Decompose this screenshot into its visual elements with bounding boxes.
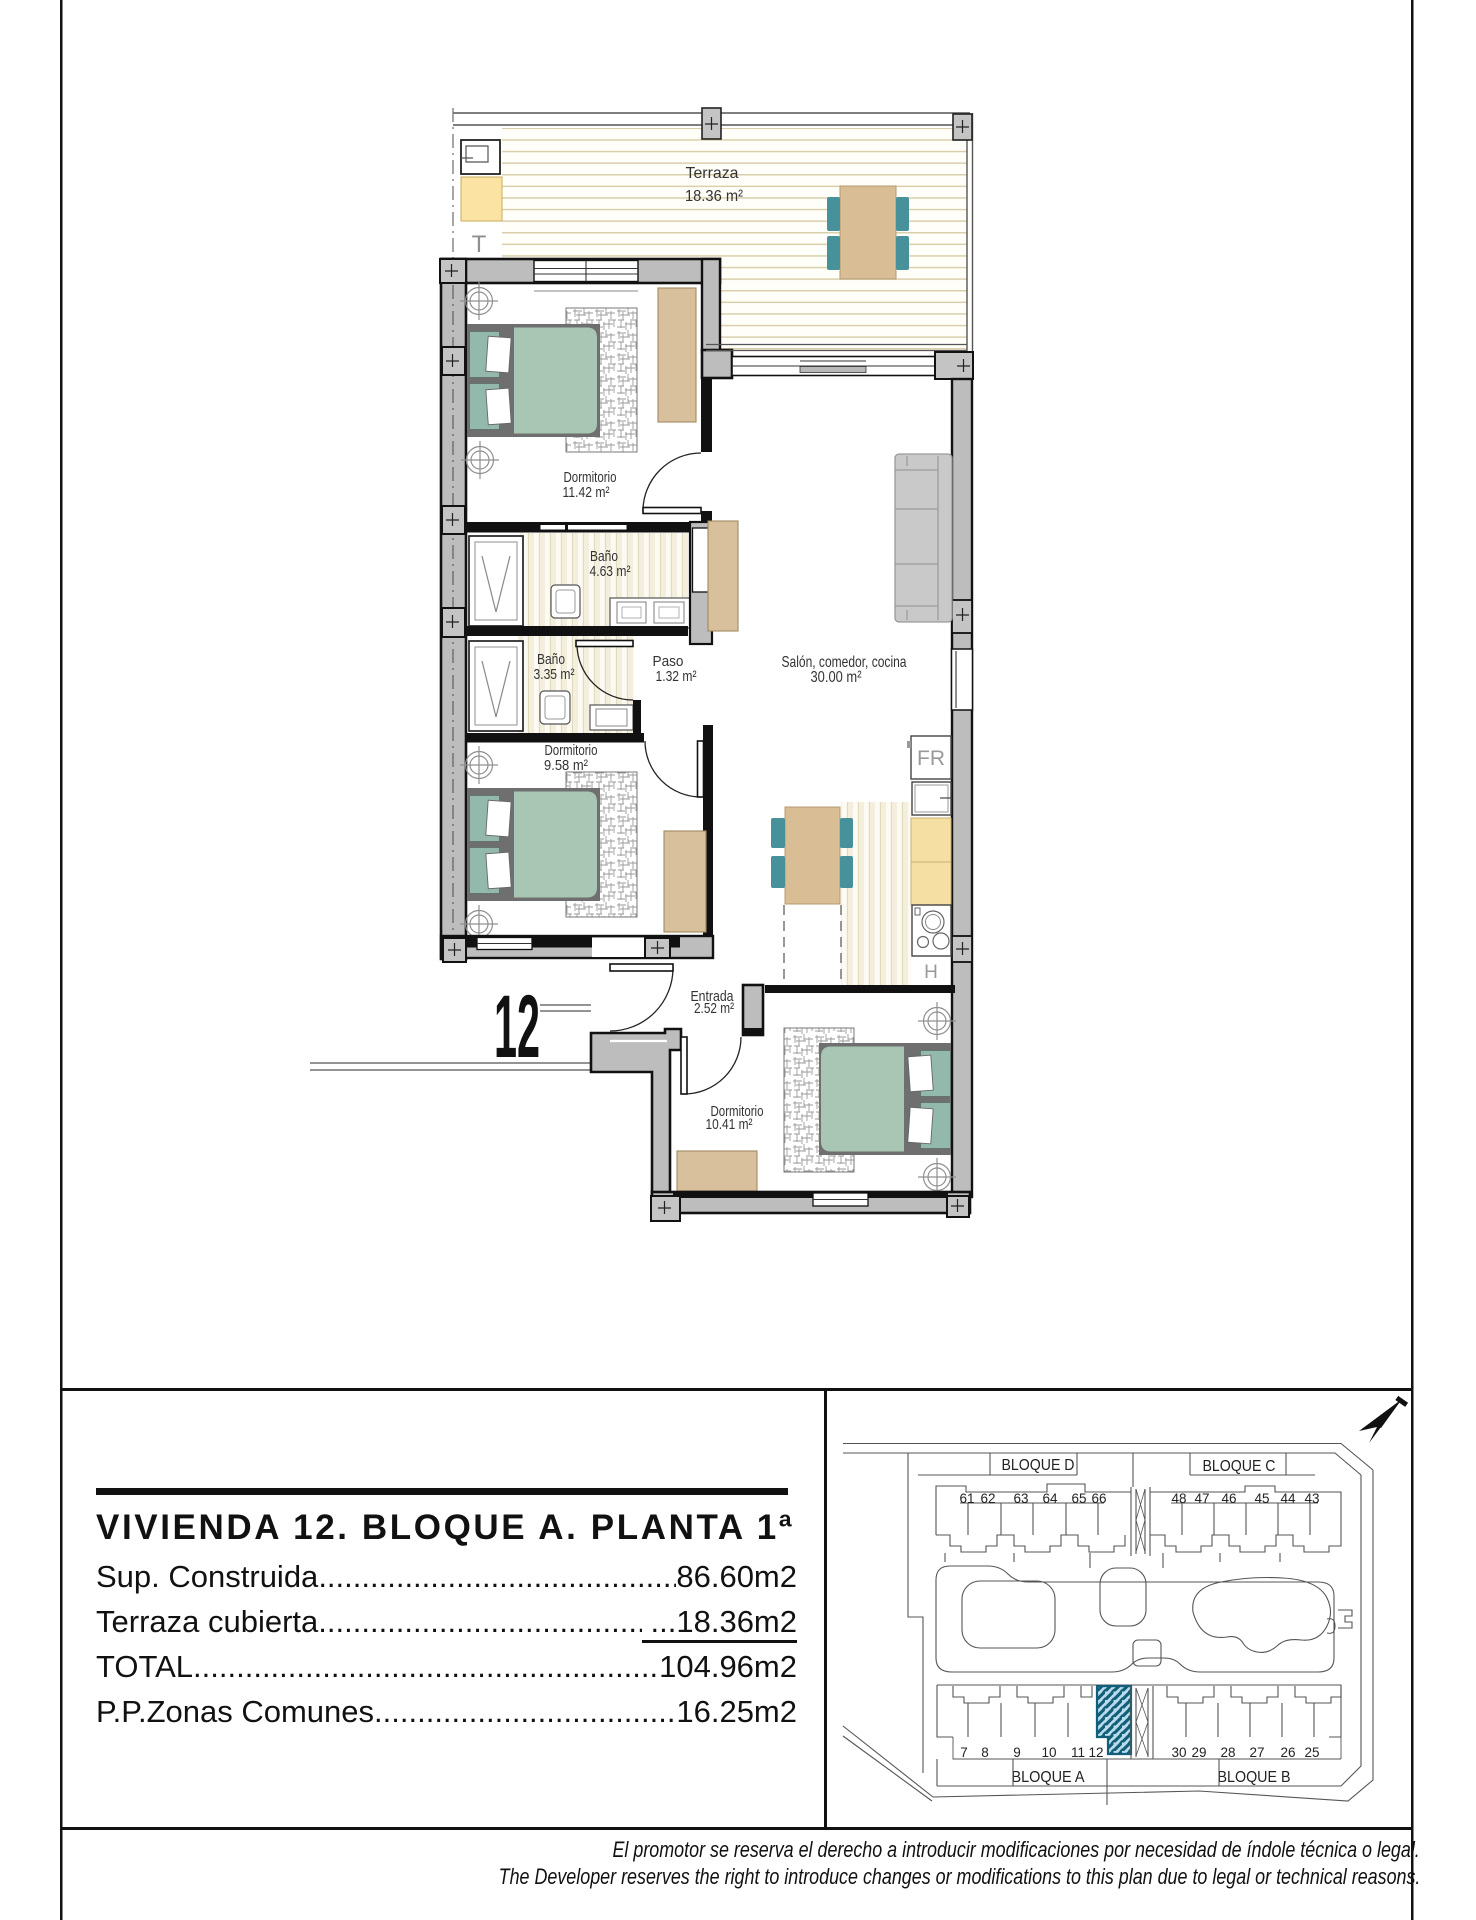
svg-text:43: 43 xyxy=(1304,1491,1319,1506)
svg-text:BLOQUE C: BLOQUE C xyxy=(1203,1458,1276,1475)
svg-text:45: 45 xyxy=(1254,1491,1269,1506)
svg-text:4.63 m²: 4.63 m² xyxy=(590,563,631,580)
svg-text:FR: FR xyxy=(917,747,945,770)
svg-text:29: 29 xyxy=(1191,1745,1206,1760)
svg-text:18.36 m²: 18.36 m² xyxy=(685,188,744,205)
svg-text:27: 27 xyxy=(1249,1745,1264,1760)
svg-text:10: 10 xyxy=(1041,1745,1056,1760)
svg-text:25: 25 xyxy=(1304,1745,1319,1760)
svg-text:65: 65 xyxy=(1071,1491,1086,1506)
svg-text:H: H xyxy=(924,962,938,983)
svg-text:BLOQUE D: BLOQUE D xyxy=(1002,1457,1075,1474)
svg-text:30: 30 xyxy=(1171,1745,1186,1760)
svg-text:BLOQUE B: BLOQUE B xyxy=(1218,1769,1291,1786)
svg-text:Terraza: Terraza xyxy=(686,165,739,182)
svg-text:28: 28 xyxy=(1220,1745,1235,1760)
svg-text:46: 46 xyxy=(1221,1491,1236,1506)
svg-text:48: 48 xyxy=(1171,1491,1186,1506)
svg-text:30.00 m²: 30.00 m² xyxy=(811,669,863,686)
svg-text:1.32 m²: 1.32 m² xyxy=(656,668,697,685)
svg-text:44: 44 xyxy=(1280,1491,1296,1506)
svg-text:63: 63 xyxy=(1013,1491,1028,1506)
svg-text:10.41 m²: 10.41 m² xyxy=(706,1116,753,1133)
svg-text:9.58 m²: 9.58 m² xyxy=(544,757,588,774)
svg-text:66: 66 xyxy=(1091,1491,1106,1506)
svg-text:11.42 m²: 11.42 m² xyxy=(563,484,610,501)
svg-text:47: 47 xyxy=(1194,1491,1209,1506)
svg-text:8: 8 xyxy=(981,1745,989,1760)
svg-text:3.35 m²: 3.35 m² xyxy=(534,666,575,683)
svg-text:62: 62 xyxy=(980,1491,995,1506)
svg-text:7: 7 xyxy=(960,1745,968,1760)
svg-text:61: 61 xyxy=(959,1491,974,1506)
svg-text:12: 12 xyxy=(494,976,540,1076)
svg-text:64: 64 xyxy=(1042,1491,1058,1506)
svg-text:9: 9 xyxy=(1013,1745,1021,1760)
svg-text:BLOQUE A: BLOQUE A xyxy=(1012,1769,1085,1786)
svg-text:12: 12 xyxy=(1088,1745,1103,1760)
svg-text:T: T xyxy=(472,231,487,258)
svg-text:2.52 m²: 2.52 m² xyxy=(694,1000,734,1017)
svg-text:11: 11 xyxy=(1071,1745,1085,1760)
svg-text:26: 26 xyxy=(1280,1745,1295,1760)
